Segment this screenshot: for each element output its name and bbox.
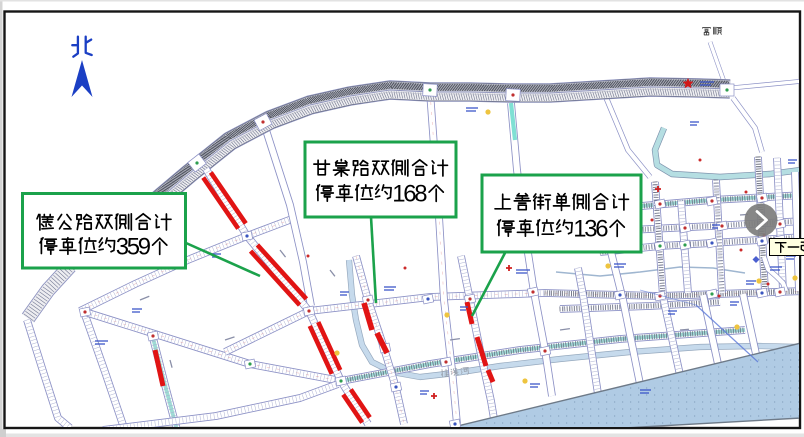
svg-text:9: 9 <box>138 233 151 260</box>
svg-text:8: 8 <box>414 180 427 207</box>
svg-text:6: 6 <box>595 215 608 242</box>
